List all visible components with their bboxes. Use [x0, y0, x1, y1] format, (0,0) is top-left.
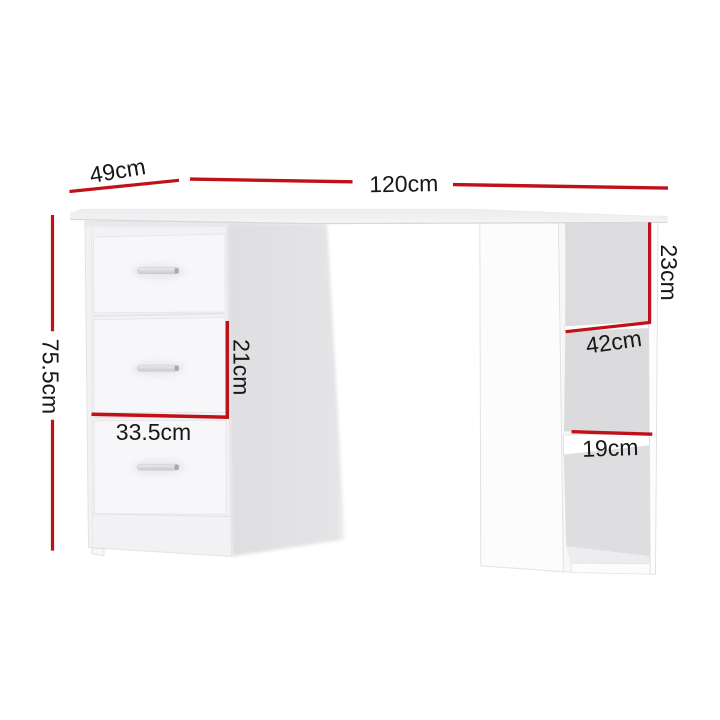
svg-text:120cm: 120cm: [369, 170, 438, 197]
svg-text:33.5cm: 33.5cm: [116, 419, 191, 445]
svg-text:75.5cm: 75.5cm: [37, 339, 63, 414]
svg-text:21cm: 21cm: [229, 339, 255, 395]
svg-text:19cm: 19cm: [582, 434, 639, 462]
svg-text:23cm: 23cm: [656, 244, 682, 300]
